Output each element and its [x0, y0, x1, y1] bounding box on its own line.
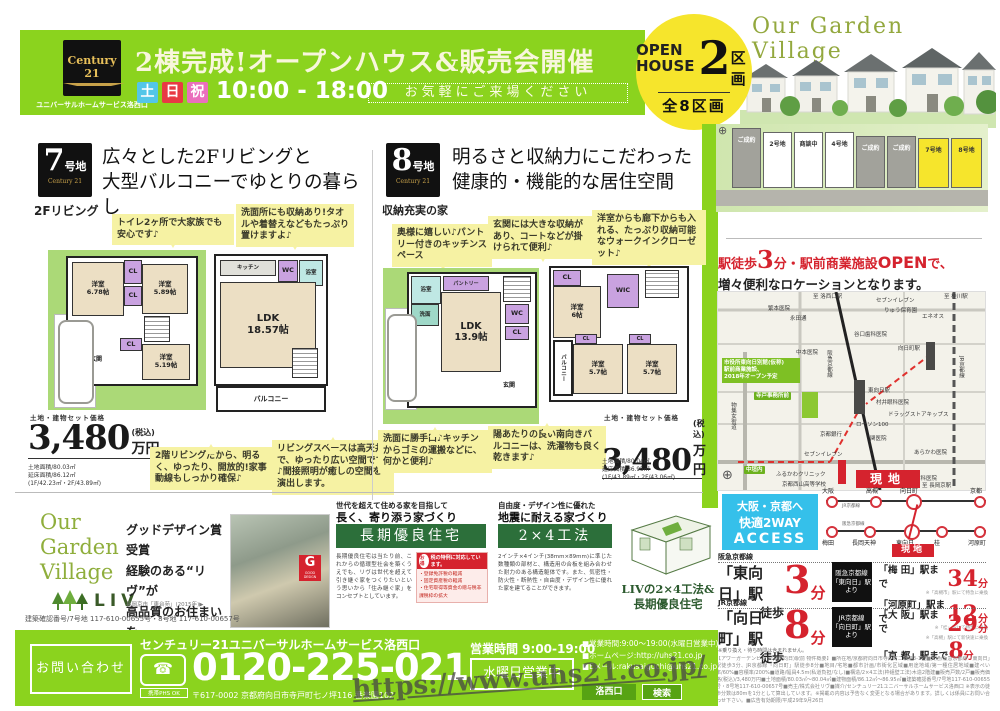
bath: 浴室: [411, 276, 441, 304]
map-label-road: 物集女街道: [730, 402, 736, 430]
dest-note: ※「高槻市」駅にて特急に乗換: [879, 590, 989, 596]
car: [387, 314, 417, 402]
lot8-land-area: 土地面積/80.04㎡: [602, 458, 675, 466]
visit-note: お気軽にご来場ください: [368, 83, 628, 103]
tax-badge: お得: [419, 554, 429, 568]
location-subline: 増々便利なロケーションとなります。: [718, 274, 990, 293]
jr-line-label: JR京都線: [842, 503, 860, 509]
stairs: [292, 348, 318, 378]
facility-note: 市役所東向日別館(仮称) 駅前商業施設、 2018年オープン予定: [722, 358, 800, 383]
c1-banner: 長期優良住宅: [336, 524, 486, 548]
ogv-line2: Garden: [40, 535, 119, 560]
lot7-plan-2f: キッチン WC 浴室 LDK 18.57帖 バルコニー: [212, 250, 328, 412]
map-label: 東向日駅: [868, 388, 890, 394]
lot8-badge-suffix: 号地: [412, 160, 434, 173]
lot7-badge-brand: Century 21: [38, 178, 92, 185]
confirmation-numbers: 建築確認番号/7号地 117-610-00655号・8号地 117-610-00…: [25, 614, 240, 624]
dest-name: 「大 阪」駅まで: [879, 607, 948, 635]
inquiry-box: お問い合わせ: [30, 644, 132, 694]
map-label: 至 桂川駅: [944, 294, 968, 300]
jr-walk-unit: 分: [811, 627, 826, 648]
map-label: セブンイレブン: [804, 452, 843, 458]
station-label: 長岡天神: [852, 538, 876, 547]
walk-text: 駅徒歩: [718, 257, 757, 272]
station-label: 河原町: [968, 538, 986, 547]
transfer-note: ※乗り換え・待ち時間は含まれません。: [718, 647, 807, 654]
lot8-price-tax: (税込): [693, 418, 706, 440]
room: 洋室 5.89帖: [142, 264, 188, 314]
diagram-caption: LIVの2×4工法& 長期優良住宅: [616, 582, 720, 612]
c1-body: 長期優良住宅は当たり前、これからの循環型社会を築くうえでも、リヴは世代を超えて引…: [336, 554, 412, 602]
station-label: 梅田: [822, 538, 834, 547]
access-line-1: 大阪・京都へ: [722, 498, 818, 514]
lot8-callout-2: 玄関には大きな収納があり、コートなどが掛けられて便利♪: [488, 216, 596, 259]
lot8-floor-area: 延床面積/86.95㎡: [602, 466, 675, 474]
right-divider: [726, 238, 982, 239]
hankyu-line-label: 阪急京都線: [842, 521, 865, 527]
wc: WC: [278, 260, 298, 282]
jr-from-box: JR京都線 「向日町」駅 より: [832, 607, 872, 647]
closet: CL: [124, 260, 142, 284]
ogv-line1: Our: [40, 510, 119, 535]
lot7-callout-2: 洗面所にも収納あり!タオルや着替えなどもたっぷり置けますよ♪: [236, 204, 354, 247]
genkan-label: 玄関: [503, 380, 515, 389]
map-label-rail: JR京都線: [958, 356, 964, 378]
closet: CL: [505, 326, 529, 340]
lot7-price: 3,480 (税込) 万円: [28, 418, 168, 459]
kitchen: キッチン: [220, 260, 276, 276]
lot-plot-1: ご成約: [732, 128, 761, 188]
lot-plot-3: 商談中: [794, 132, 823, 188]
lot7-callout-3: 2階リビングだから、明るく、ゆったり、開放的!家事動線もしっかり確保♪: [150, 447, 272, 490]
c2-banner: 2×4工法: [498, 524, 612, 548]
balcony: バルコニー: [216, 386, 326, 412]
map-label: ローソン100: [856, 422, 889, 428]
car: [58, 320, 94, 404]
closet: CL: [629, 334, 651, 344]
station-label: 高槻: [866, 486, 878, 495]
dest-min: 29: [947, 615, 978, 635]
lot7-badge: 7号地 Century 21: [38, 143, 92, 197]
lot-plot-2: 2号地: [763, 132, 792, 188]
interior-photo: G GOOD DESIGN: [230, 514, 330, 628]
map-label: 谷口歯科医院: [854, 332, 887, 338]
particle-text: で、: [927, 257, 952, 272]
lot8-tag: 収納充実の家: [382, 202, 448, 218]
map-label: 繁本医院: [768, 306, 790, 312]
closet: CL: [553, 270, 581, 286]
good-design-badge: G GOOD DESIGN: [299, 555, 321, 581]
tax-item: ・登録免許税の軽減: [419, 571, 485, 578]
map-label: ドラッグストアキップス: [888, 412, 949, 418]
wic: WIC: [607, 274, 639, 308]
wc: WC: [505, 304, 529, 324]
map-label-badge: 寺戸事務所前: [754, 392, 791, 400]
bullet-hours: ■営業時間:9:00〜19:00(水曜日営業中): [582, 638, 718, 650]
2x4-house-diagram: [622, 500, 714, 580]
access-2way-box: 大阪・京都へ 快適2WAY ACCESS: [722, 494, 818, 550]
lot-plot-6: ご成約: [887, 136, 916, 188]
jr-walk-min: 8: [784, 607, 810, 643]
open-hours: 10:00 - 18:00: [216, 78, 388, 104]
flyer-title: 2棟完成!オープンハウス&販売会開催: [135, 42, 594, 79]
hankyu-from-box: 阪急京都線 「東向日」駅 より: [832, 562, 872, 602]
freedial-icon: ☎: [140, 654, 186, 686]
access-line-3: ACCESS: [722, 531, 818, 547]
good-design-label: GOOD DESIGN: [301, 571, 319, 579]
map-label: 関医院: [870, 436, 887, 442]
lot7-floor-area: 延床面積/86.12㎡: [28, 472, 101, 480]
lot-plot-4: 4号地: [825, 132, 854, 188]
lot8-plan-2f: CL 洋室 6帖 WIC バルコニー CL 洋室 5.7帖 CL 洋室 5.7帖: [545, 262, 691, 412]
map-label: 中本医院: [796, 350, 818, 356]
map-label: あらかわ医院: [914, 450, 947, 456]
lot-plot-8: 8号地: [951, 138, 982, 188]
day-sat-badge: 土: [137, 82, 158, 103]
station-label: 桂: [934, 538, 940, 547]
lot8-plan-1f: 浴室 洗面 パントリー LDK 13.9帖 WC CL 玄関: [383, 268, 539, 424]
map-label: 村井眼科医院: [876, 400, 909, 406]
open-label-2: HOUSE: [636, 59, 695, 75]
map-label: 永田通: [790, 316, 807, 322]
lot8-badge-number: 8: [392, 143, 413, 178]
tax-box: お得 税の特例に対応しています。 ・登録免許税の軽減 ・固定資産税の軽減 ・住宅…: [416, 552, 488, 603]
lot7-tag: 2Fリビング: [34, 202, 99, 219]
station-label: 大阪: [822, 486, 834, 495]
pantry: パントリー: [443, 276, 489, 291]
lot7-floor-detail: (1F/42.23㎡・2F/43.89㎡): [28, 480, 101, 488]
room: 洋室 5.19帖: [142, 344, 190, 380]
c2-head: 地震に耐える家づくり: [498, 509, 608, 525]
room: 洋室 5.7帖: [573, 344, 623, 394]
access-line-2: 快適2WAY: [722, 514, 818, 531]
dest-name: 「梅 田」駅まで: [879, 562, 948, 590]
lot7-land-area: 土地面積/80.03㎡: [28, 464, 101, 472]
lot8-callout-4: 洗面に勝手口♪キッチンからゴミの運搬などに、何かと便利♪: [378, 430, 492, 473]
ogv-logo-text: Our Garden Village: [40, 510, 119, 586]
stairs: [645, 270, 679, 298]
houses-illustration: [740, 36, 996, 128]
map-label: エネオス: [922, 314, 944, 320]
ldk: LDK 13.9帖: [441, 292, 501, 372]
balcony: バルコニー: [553, 340, 573, 396]
promo-caption: 長岡京市「東台苑」(2015年)▶: [126, 600, 204, 608]
dest-note: ※「高槻」駅にて新快速に乗換: [879, 635, 989, 641]
century21-logo-text: Century 21: [63, 54, 121, 80]
map-label: ふるかわクリニック: [776, 472, 826, 478]
c2-body: 2インチ×4インチ(38mm×89mm)に準じた数種類の部材と、構造用の合板を組…: [498, 554, 612, 594]
room: 洋室 6帖: [553, 286, 601, 338]
open-count: 2: [699, 38, 731, 79]
c1-head: 長く、寄り添う家づくり: [336, 509, 457, 525]
lot8-callout-1: 奥様に嬉しい♪パントリー付きのキッチンスペース: [392, 224, 492, 267]
section-divider: [372, 150, 373, 500]
lot7-price-number: 3,480: [28, 418, 129, 458]
search-button[interactable]: 検索: [642, 684, 682, 700]
map-label: セブンイレブン: [876, 298, 915, 304]
closet: CL: [120, 338, 142, 351]
map-label-badge: 中垣内: [744, 466, 765, 474]
map-label: 向日町駅: [898, 346, 920, 352]
dest-unit: 分: [978, 575, 988, 590]
lot8-floor-detail: (1F/43.89㎡・2F/43.06㎡): [602, 474, 675, 482]
lot7-callout-1: トイレ2ヶ所で大家族でも安心です♪: [112, 214, 234, 245]
compass-icon: ⊕: [722, 468, 733, 483]
lots-diagram: ⊕ ご成約 2号地 商談中 4号地 ご成約 ご成約 7号地 8号地: [716, 124, 988, 212]
lot7-price-tax: (税込): [131, 427, 159, 438]
room: 洋室 6.78帖: [72, 262, 124, 316]
day-hol-badge: 祝: [187, 82, 208, 103]
station-label: 京都: [970, 486, 982, 495]
room: 洋室 5.7帖: [627, 344, 677, 394]
day-sun-badge: 日: [162, 82, 183, 103]
tax-head: 税の特例に対応しています。: [431, 554, 485, 568]
lot7-badge-number: 7: [44, 143, 65, 178]
tax-item: ・固定資産税の軽減: [419, 578, 485, 585]
map-label: 京都西山高等学校: [782, 482, 826, 488]
stairs: [144, 316, 170, 342]
closet: CL: [124, 286, 142, 306]
rail-diagram: JR京都線 大阪 高槻 向日町 京都 阪急京都線 梅田 長岡天神 東向日 桂 河…: [826, 486, 986, 552]
liv-trees-icon: [52, 590, 88, 612]
walk-minutes: 3: [757, 245, 774, 274]
location-headline: 駅徒歩3分・駅前商業施設OPENで、 増々便利なロケーションとなります。: [718, 248, 990, 293]
lot8-callout-3: 洋室からも廊下からも入れる、たっぷり収納可能なウォークインクローゼット♪: [592, 210, 706, 265]
freedial-note: 携帯PHS OK: [140, 688, 188, 698]
lot8-areas: 土地面積/80.04㎡ 延床面積/86.95㎡ (1F/43.89㎡・2F/43…: [602, 458, 675, 482]
dest-unit: 分: [978, 620, 988, 635]
lot8-headline: 明るさと収納力にこだわった 健康的・機能的な居住空間: [452, 146, 702, 196]
compass-icon: ⊕: [718, 124, 727, 137]
map-label: 至 洛西口駅: [813, 294, 842, 300]
lot-plot-7: 7号地: [918, 138, 949, 188]
century21-roof-icon: [63, 83, 125, 94]
tax-item: ・住宅取得等資金の贈与税非課税枠の拡大: [419, 585, 485, 599]
map-label: りゅう保育園: [884, 308, 917, 314]
lot7-callout-4: リビングスペースは高天井で、ゆったり広い空間です♪間接照明が癒しの空間を演出しま…: [272, 440, 394, 495]
lot-plot-5: ご成約: [856, 136, 885, 188]
stairs: [503, 276, 531, 302]
open-text: OPEN: [878, 253, 928, 272]
lot8-callout-5: 陽あたりの良い南向きバルコニーは、洗濯物も良く乾きます♪: [488, 426, 606, 469]
promo-divider: [15, 492, 703, 493]
lot8-badge: 8号地 Century 21: [386, 143, 440, 197]
closet: CL: [575, 334, 597, 344]
lot7-badge-suffix: 号地: [64, 160, 86, 173]
lot8-price-unit: 万円: [693, 440, 706, 478]
hankyu-walk-min: 3: [784, 562, 810, 598]
facility-text: 分・駅前商業施設: [774, 257, 878, 272]
property-fineprint: 【アワーガーデンビレッジ(東向日)駅前 物件概要】■所在地/京都府向日市寺戸町二…: [716, 656, 990, 706]
lot8-badge-brand: Century 21: [386, 178, 440, 185]
open-unit: 区画: [731, 47, 752, 89]
dest-min: 34: [947, 570, 978, 590]
map-label-rail: 阪急京都線: [826, 350, 832, 378]
open-total: 全8区画: [662, 95, 725, 116]
hours-text: 営業時間 9:00-19:00: [470, 640, 595, 657]
jr-station: 「向日町」駅: [718, 607, 784, 649]
lot7-plan-1f: 洋室 6.78帖 CL 洋室 5.89帖 CL CL 洋室 5.19帖 玄関: [48, 250, 206, 410]
lot7-areas: 土地面積/80.03㎡ 延床面積/86.12㎡ (1F/42.23㎡・2F/43…: [28, 464, 101, 488]
century21-logo: Century 21: [63, 40, 121, 96]
area-map: 至 洛西口駅 セブンイレブン りゅう保育園 エネオス 至 桂川駅 繁本医院 永田…: [718, 292, 985, 490]
open-house-circle: OPEN HOUSE 2 区画 全8区画: [636, 14, 752, 130]
map-label: 京都銀行: [820, 432, 842, 438]
ogv-line3: Village: [40, 560, 119, 585]
